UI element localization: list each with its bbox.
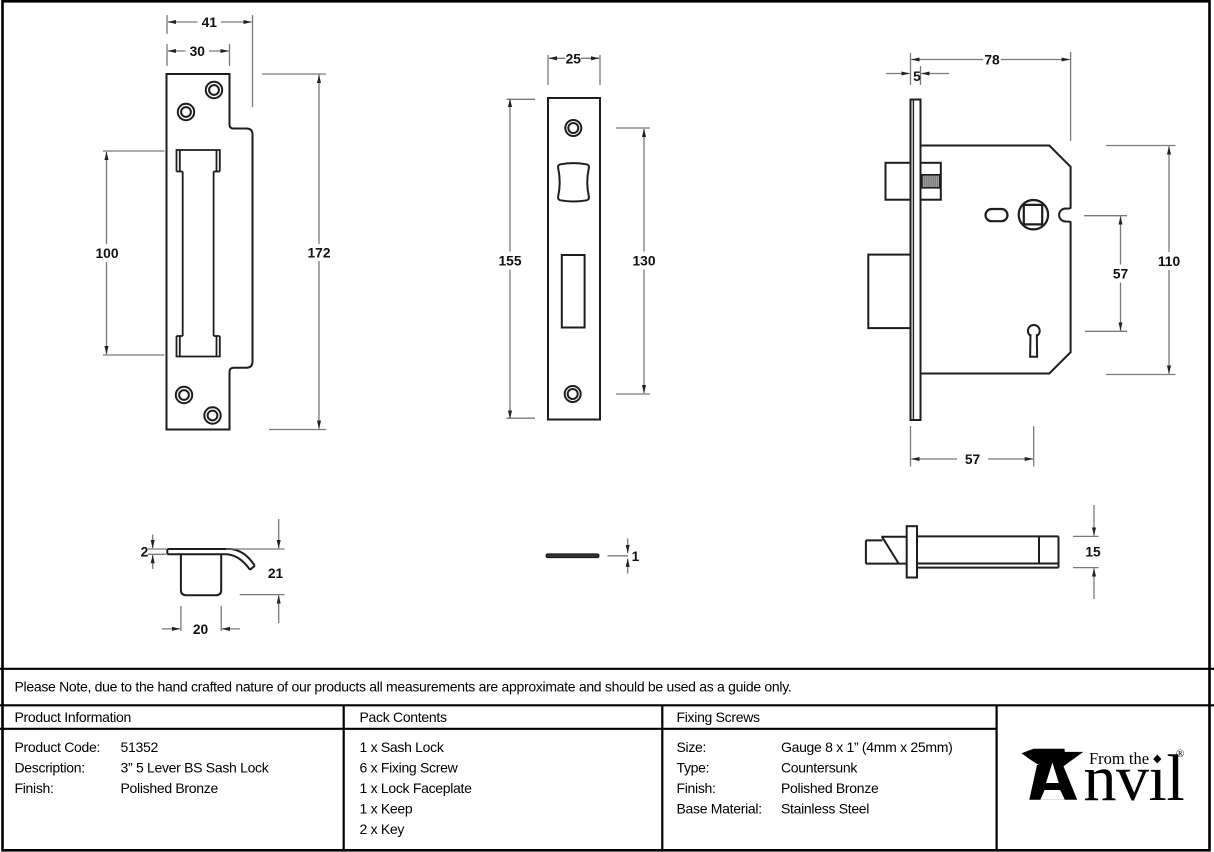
svg-text:1 x Keep: 1 x Keep: [360, 801, 413, 817]
svg-text:Stainless Steel: Stainless Steel: [781, 801, 869, 817]
svg-text:Polished Bronze: Polished Bronze: [781, 780, 879, 796]
svg-text:®: ®: [1176, 748, 1184, 760]
svg-text:Gauge 8 x 1” (4mm x 25mm): Gauge 8 x 1” (4mm x 25mm): [781, 739, 952, 755]
svg-text:1 x Lock Faceplate: 1 x Lock Faceplate: [360, 780, 473, 796]
svg-text:Type:: Type:: [677, 760, 710, 776]
svg-text:Countersunk: Countersunk: [781, 760, 858, 776]
svg-text:2: 2: [141, 545, 149, 560]
svg-text:Finish:: Finish:: [677, 780, 716, 796]
svg-text:21: 21: [268, 566, 284, 581]
svg-text:3” 5 Lever BS Sash Lock: 3” 5 Lever BS Sash Lock: [121, 760, 270, 776]
svg-text:1: 1: [632, 549, 640, 564]
svg-text:Finish:: Finish:: [15, 780, 54, 796]
svg-text:100: 100: [95, 246, 118, 261]
svg-text:Base Material:: Base Material:: [677, 801, 762, 817]
svg-text:Pack Contents: Pack Contents: [360, 709, 447, 725]
svg-text:25: 25: [566, 51, 582, 66]
svg-text:57: 57: [1113, 267, 1129, 282]
svg-text:155: 155: [498, 254, 521, 269]
svg-text:5: 5: [913, 69, 921, 84]
svg-text:Description:: Description:: [15, 760, 85, 776]
svg-text:Please Note, due to the hand c: Please Note, due to the hand crafted nat…: [15, 679, 792, 695]
svg-text:Fixing Screws: Fixing Screws: [677, 709, 761, 725]
svg-text:Size:: Size:: [677, 739, 707, 755]
svg-text:Product Information: Product Information: [15, 709, 131, 725]
svg-text:Product Code:: Product Code:: [15, 739, 101, 755]
svg-text:Polished Bronze: Polished Bronze: [121, 780, 219, 796]
svg-text:20: 20: [193, 622, 209, 637]
svg-text:57: 57: [965, 452, 981, 467]
svg-text:172: 172: [307, 246, 330, 261]
svg-text:78: 78: [984, 53, 1000, 68]
svg-text:2 x Key: 2 x Key: [360, 821, 405, 837]
svg-text:1 x Sash Lock: 1 x Sash Lock: [360, 739, 445, 755]
svg-text:41: 41: [202, 15, 218, 30]
svg-text:51352: 51352: [121, 739, 159, 755]
svg-text:110: 110: [1158, 254, 1181, 269]
svg-text:6 x Fixing Screw: 6 x Fixing Screw: [360, 760, 459, 776]
svg-text:30: 30: [190, 44, 206, 59]
svg-text:15: 15: [1085, 544, 1101, 559]
svg-text:nvil: nvil: [1084, 742, 1185, 815]
svg-text:130: 130: [632, 254, 655, 269]
